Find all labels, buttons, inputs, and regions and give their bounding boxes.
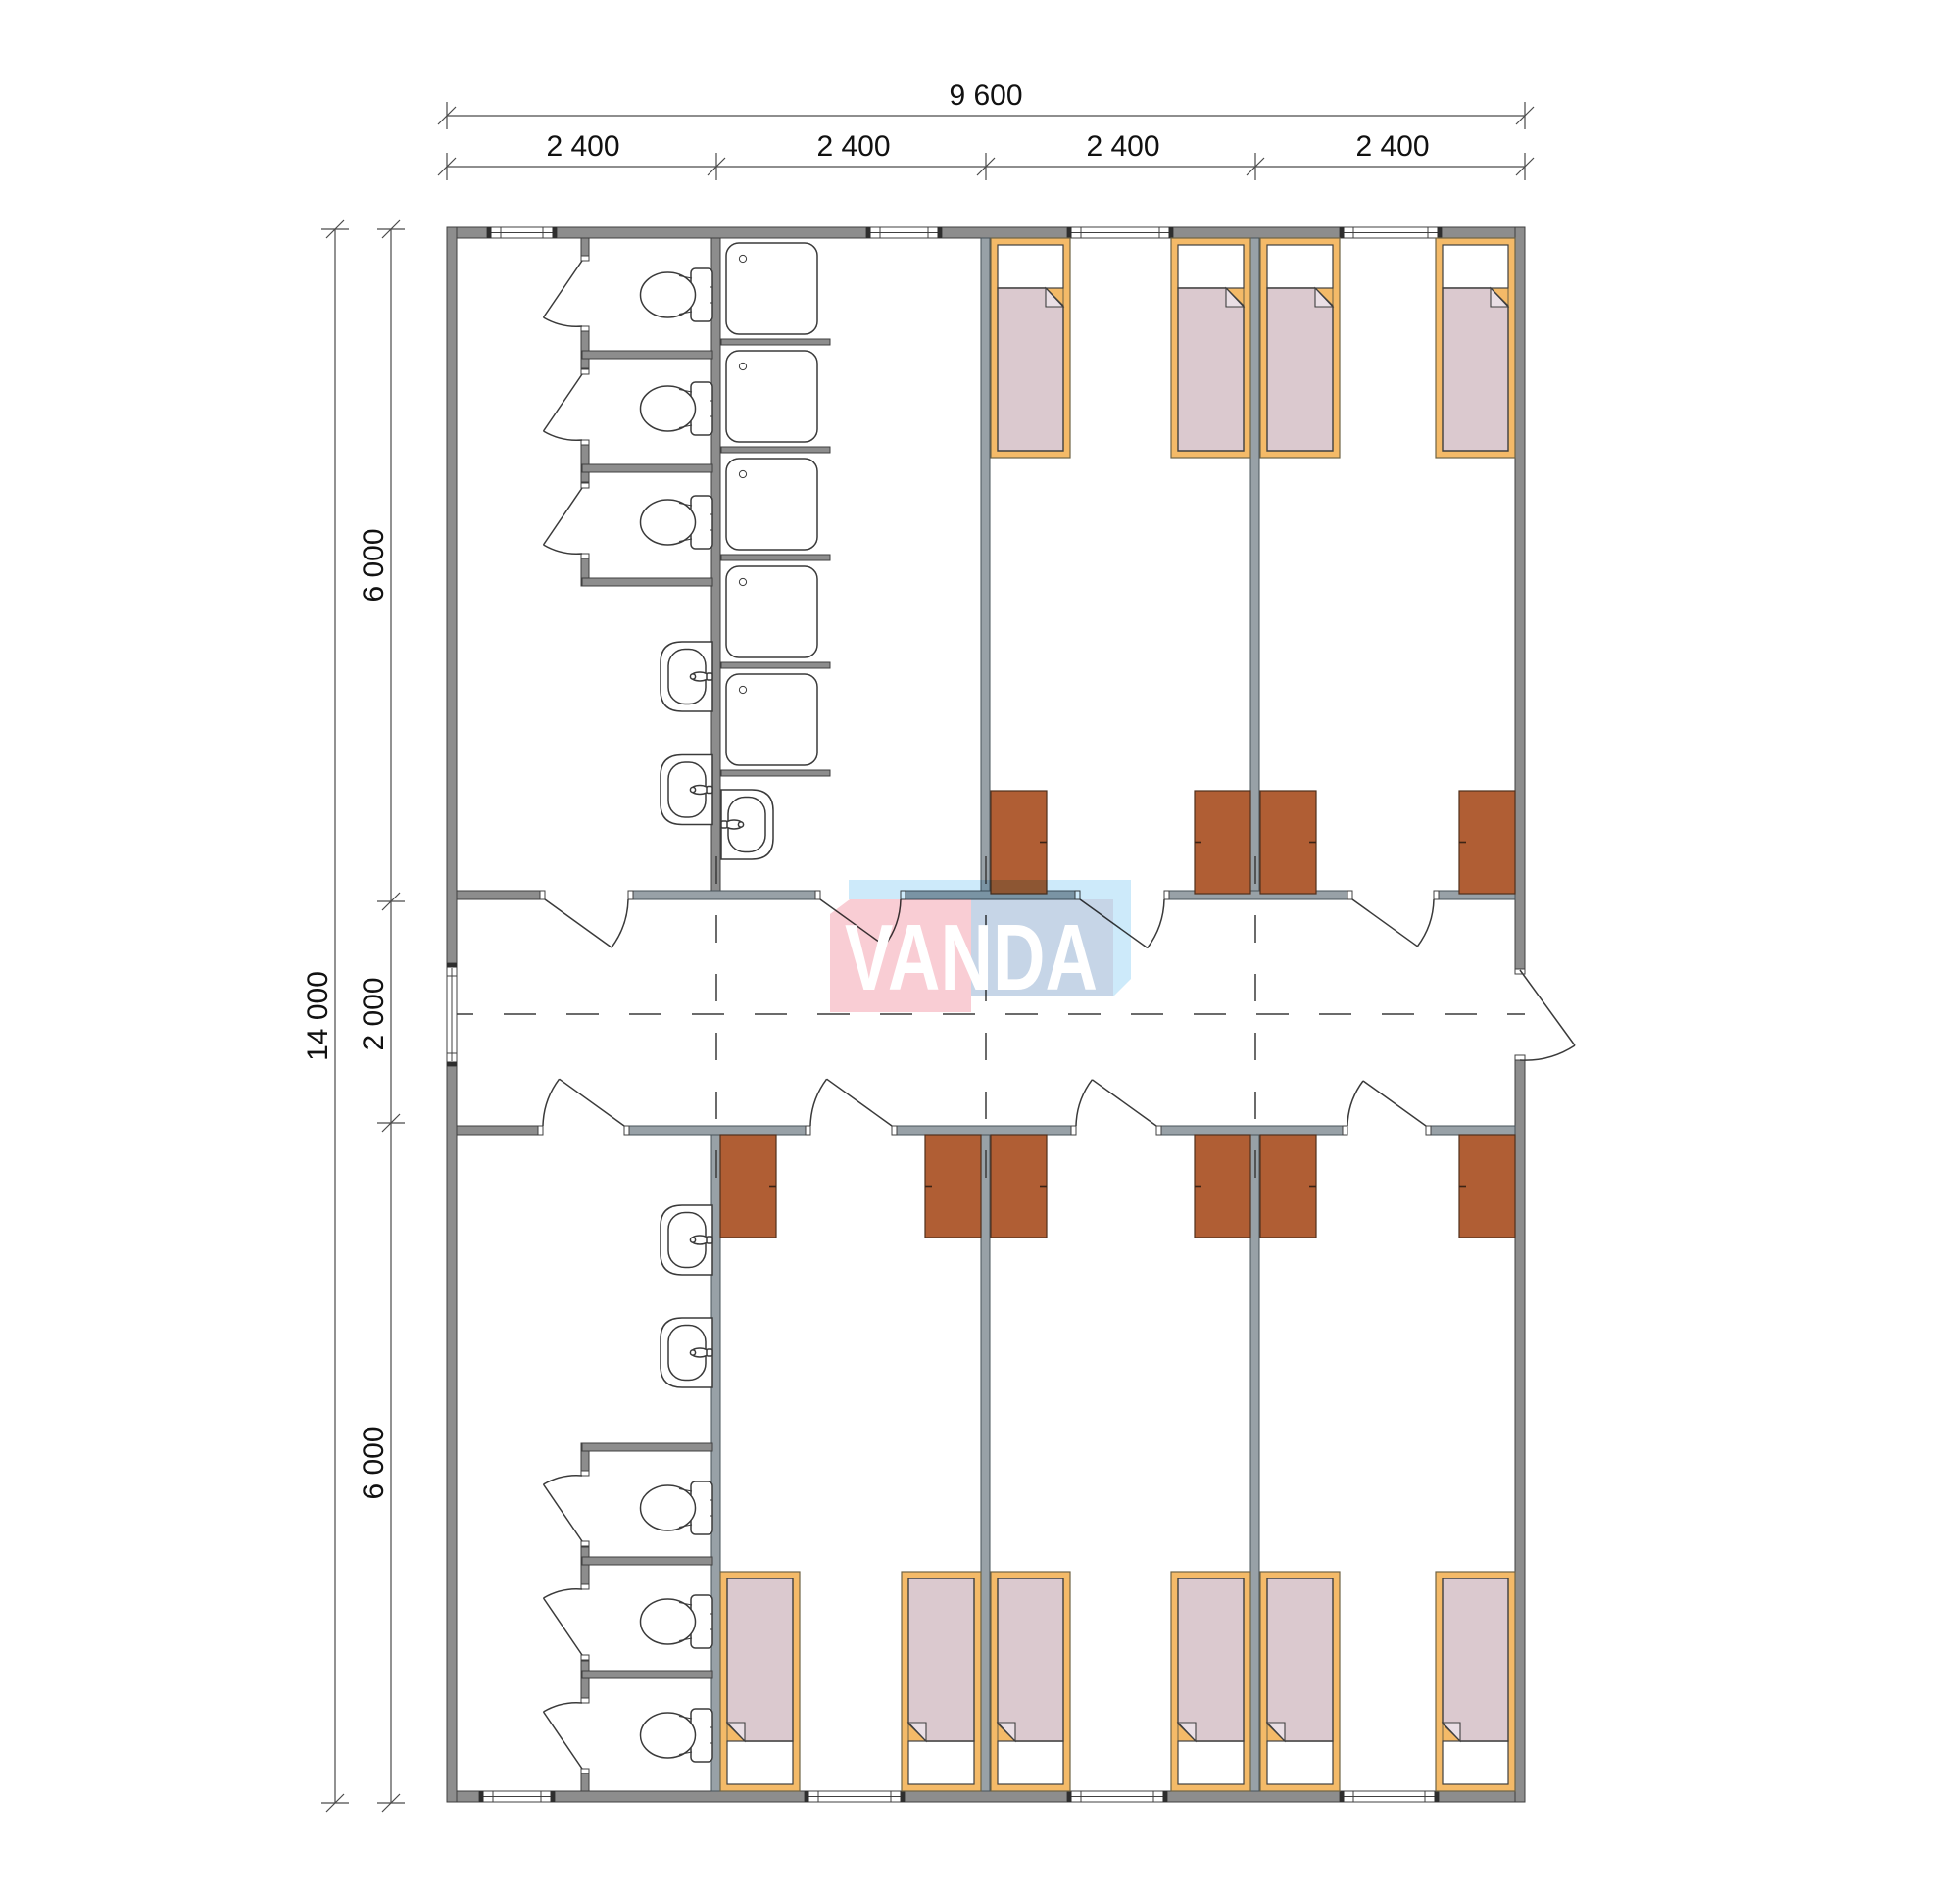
svg-text:2 400: 2 400 bbox=[546, 130, 619, 163]
svg-text:14 000: 14 000 bbox=[302, 971, 334, 1061]
svg-text:2 400: 2 400 bbox=[816, 130, 890, 163]
svg-text:6 000: 6 000 bbox=[358, 1426, 390, 1499]
svg-text:6 000: 6 000 bbox=[358, 528, 390, 602]
svg-text:2 400: 2 400 bbox=[1355, 130, 1429, 163]
svg-text:9 600: 9 600 bbox=[949, 79, 1022, 112]
svg-text:2 000: 2 000 bbox=[358, 977, 390, 1050]
svg-text:2 400: 2 400 bbox=[1086, 130, 1159, 163]
svg-text:VANDA: VANDA bbox=[845, 905, 1098, 1010]
